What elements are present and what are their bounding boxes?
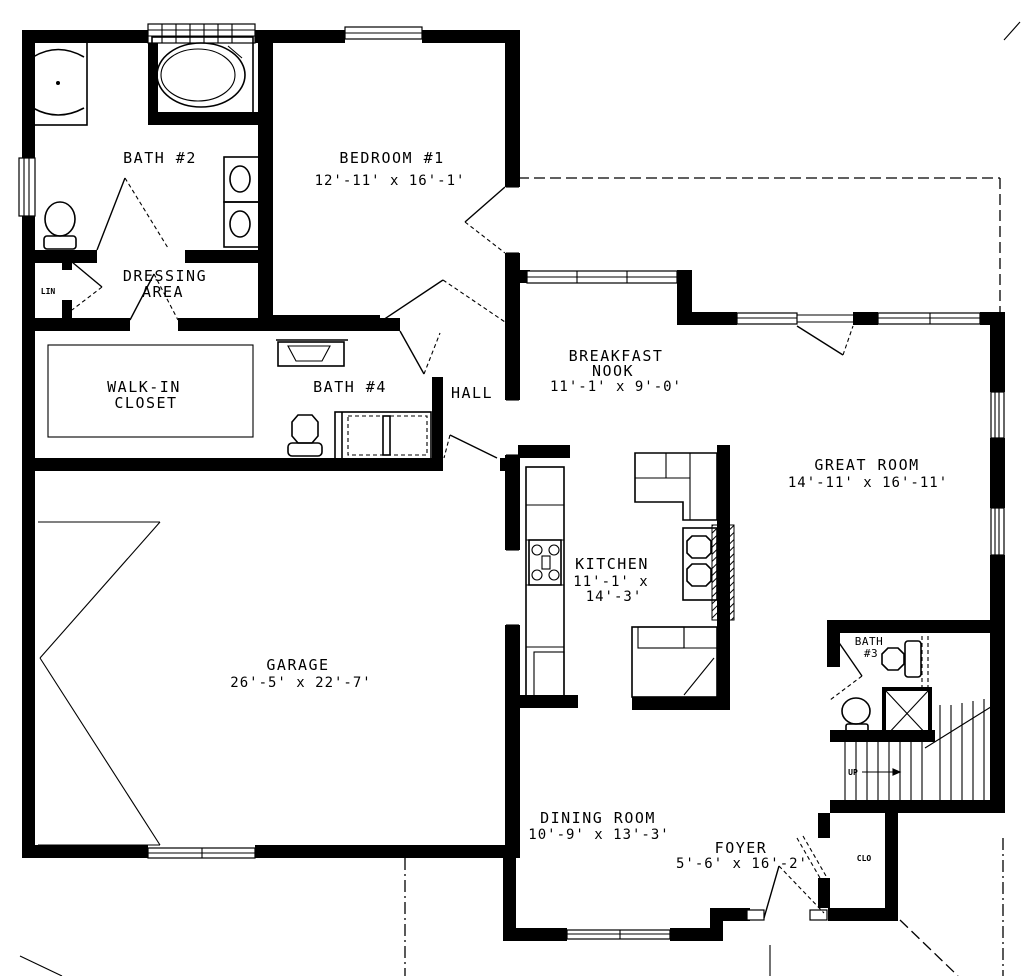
room-label-dining: DINING ROOM: [540, 809, 656, 827]
room-label-foyer: FOYER: [715, 839, 768, 857]
bedroom-side-door: [465, 187, 505, 253]
bath4-door: [400, 331, 440, 374]
tub-window: [148, 24, 255, 43]
pass-through-hatch: [712, 525, 734, 620]
toilet-bath3-icon: [842, 698, 870, 733]
bedroom-window: [345, 27, 422, 39]
room-label-lin: LIN: [41, 287, 56, 296]
toilet-bath4-icon: [288, 415, 322, 456]
bath3-sink-icon: [882, 641, 921, 677]
dims-garage: 26'-5' x 22'-7': [230, 675, 371, 691]
wall-openings: [506, 187, 853, 625]
room-label-garage: GARAGE: [266, 656, 329, 674]
great-room-right-window-2: [991, 508, 1004, 555]
bedroom-double-door: [380, 280, 505, 322]
nook-window: [527, 271, 677, 283]
stairs: [845, 699, 1002, 800]
room-label-bath2: BATH #2: [123, 149, 197, 167]
dims-kitchen-2: 14'-3': [586, 589, 643, 605]
floor-plan: BATH #2 BEDROOM #1 12'-11' x 16'-1' DRES…: [0, 0, 1023, 976]
doors: [72, 178, 862, 918]
labels: BATH #2 BEDROOM #1 12'-11' x 16'-1' DRES…: [41, 149, 948, 872]
whirlpool-tub-icon: [152, 37, 253, 113]
great-room-right-window-1: [991, 392, 1004, 438]
dining-window: [567, 930, 670, 939]
kitchen-left-counter: [526, 467, 564, 697]
double-vanity-icon: [224, 157, 260, 247]
stairs-up-label: UP: [848, 768, 858, 777]
dims-bedroom1: 12'-11' x 16'-1': [315, 173, 466, 189]
dims-kitchen-1: 11'-1' x: [573, 574, 648, 590]
room-label-hall: HALL: [451, 384, 493, 402]
deck-door: [797, 326, 853, 355]
lin-door: [72, 262, 102, 310]
front-door-sidelites: [747, 910, 827, 920]
room-label-walkin-2: CLOSET: [114, 394, 177, 412]
garage-chevron: [38, 522, 160, 845]
room-label-kitchen: KITCHEN: [575, 555, 649, 573]
room-label-bath4: BATH #4: [313, 378, 387, 396]
great-room-top-window-1: [737, 313, 797, 324]
room-label-bath3-2: #3: [864, 647, 878, 660]
room-label-dressing-2: AREA: [142, 283, 184, 301]
great-room-top-window-2: [878, 313, 980, 324]
dims-foyer: 5'-6' x 16'-2': [676, 856, 808, 872]
bath4-sink-icon: [276, 340, 348, 366]
garage-window: [148, 848, 255, 858]
dims-nook: 11'-1' x 9'-0': [550, 379, 682, 395]
shower-icon: [30, 40, 87, 125]
garage-entry-door: [444, 435, 497, 458]
room-label-clo: CLO: [857, 854, 872, 863]
bath2-door: [97, 178, 168, 250]
floor-plan-canvas: BATH #2 BEDROOM #1 12'-11' x 16'-1' DRES…: [0, 0, 1023, 976]
dims-great: 14'-11' x 16'-11': [788, 475, 948, 491]
room-label-bedroom1: BEDROOM #1: [339, 149, 444, 167]
dims-dining: 10'-9' x 13'-3': [528, 827, 669, 843]
bath4-tub-icon: [335, 412, 431, 459]
bath2-window: [19, 158, 35, 216]
room-label-great: GREAT ROOM: [814, 456, 919, 474]
kitchen-lower-cabinet: [632, 627, 717, 697]
range-icon: [529, 540, 561, 585]
room-label-nook-2: NOOK: [592, 362, 634, 380]
toilet-bath2-icon: [44, 202, 76, 249]
